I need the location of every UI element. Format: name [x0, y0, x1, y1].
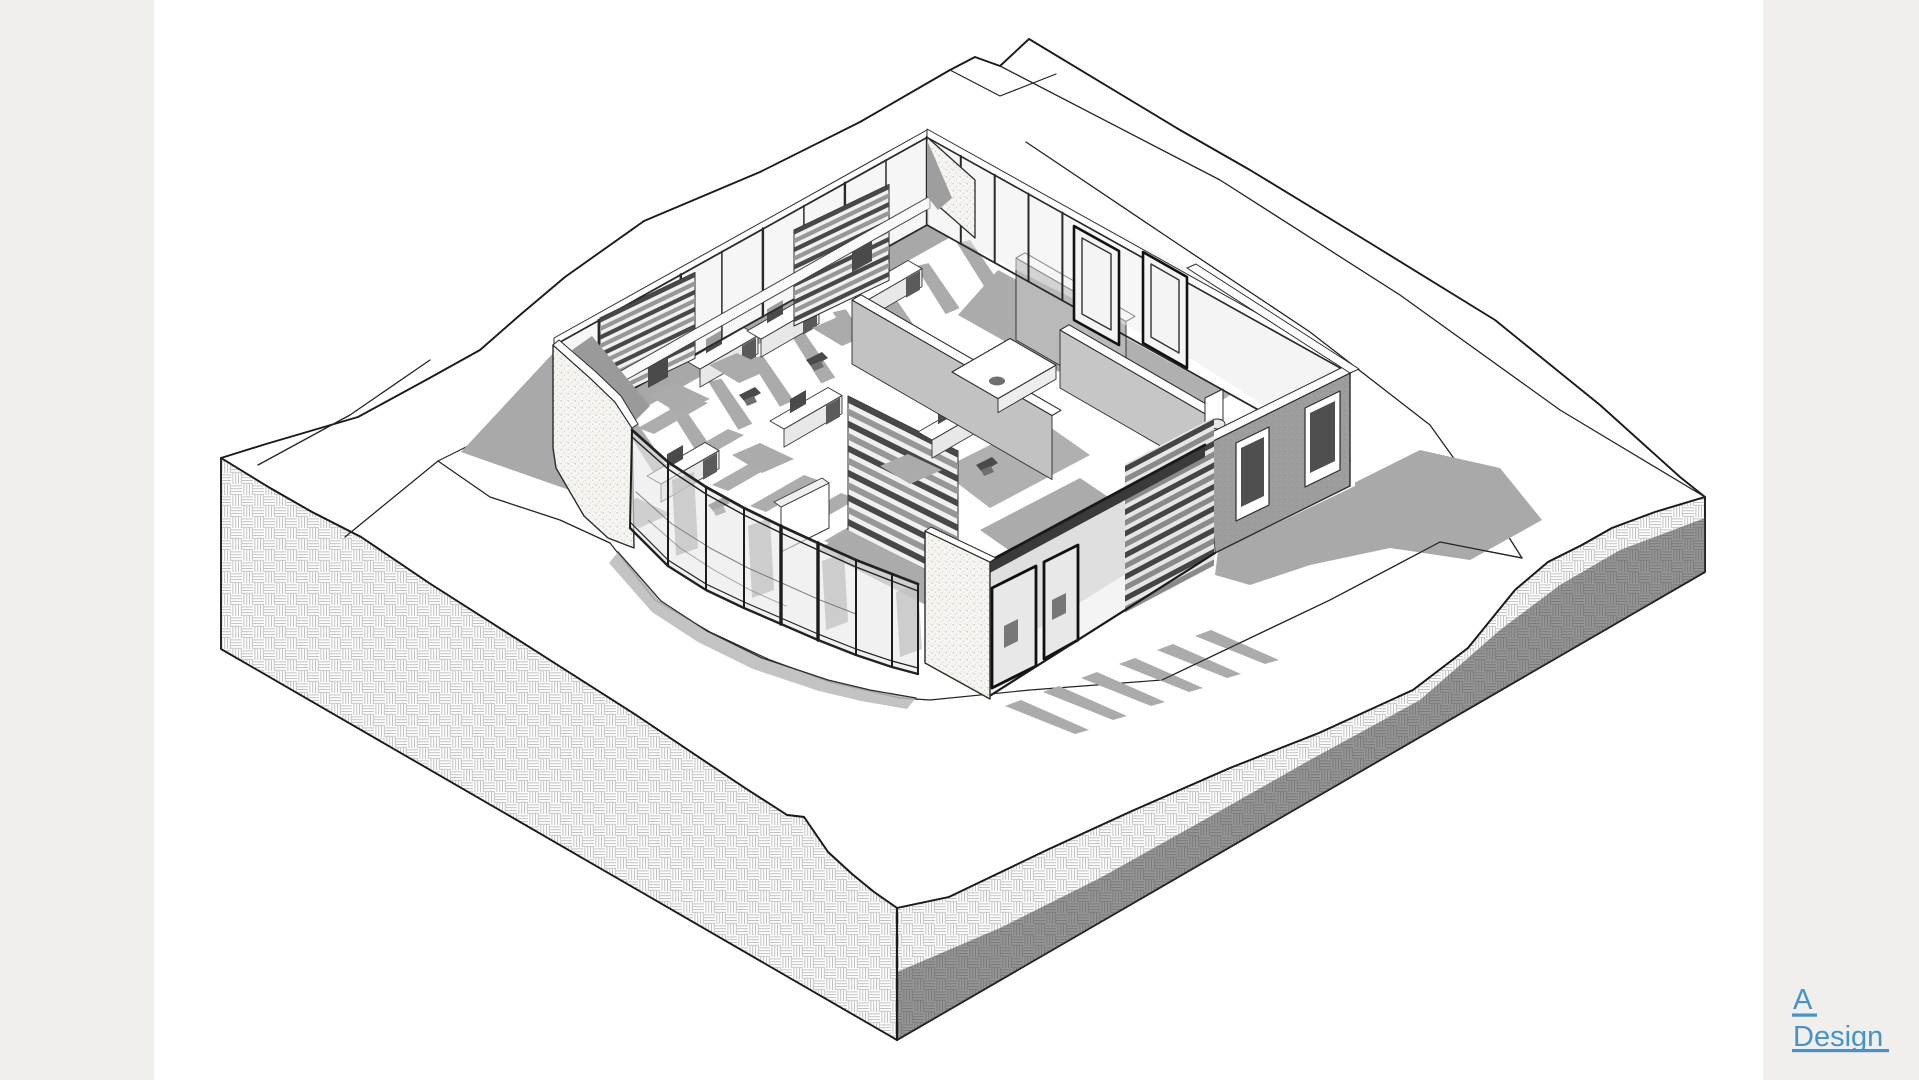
- svg-text:A: A: [1793, 984, 1813, 1016]
- svg-text:Design: Design: [1793, 1021, 1883, 1053]
